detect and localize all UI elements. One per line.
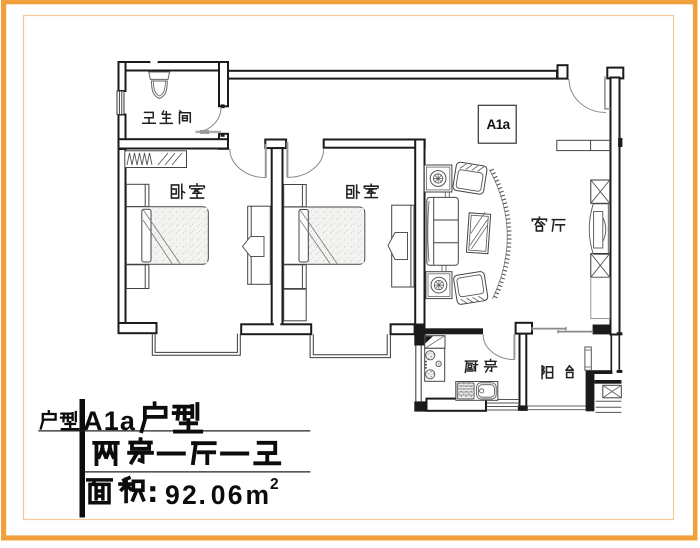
svg-text:.: . (199, 480, 206, 510)
svg-text:06: 06 (211, 480, 245, 510)
svg-text:2: 2 (270, 476, 279, 493)
svg-text:92: 92 (165, 480, 199, 510)
svg-text:m: m (246, 480, 270, 510)
svg-text:A1a: A1a (487, 117, 511, 132)
svg-text:A1a: A1a (83, 406, 136, 436)
